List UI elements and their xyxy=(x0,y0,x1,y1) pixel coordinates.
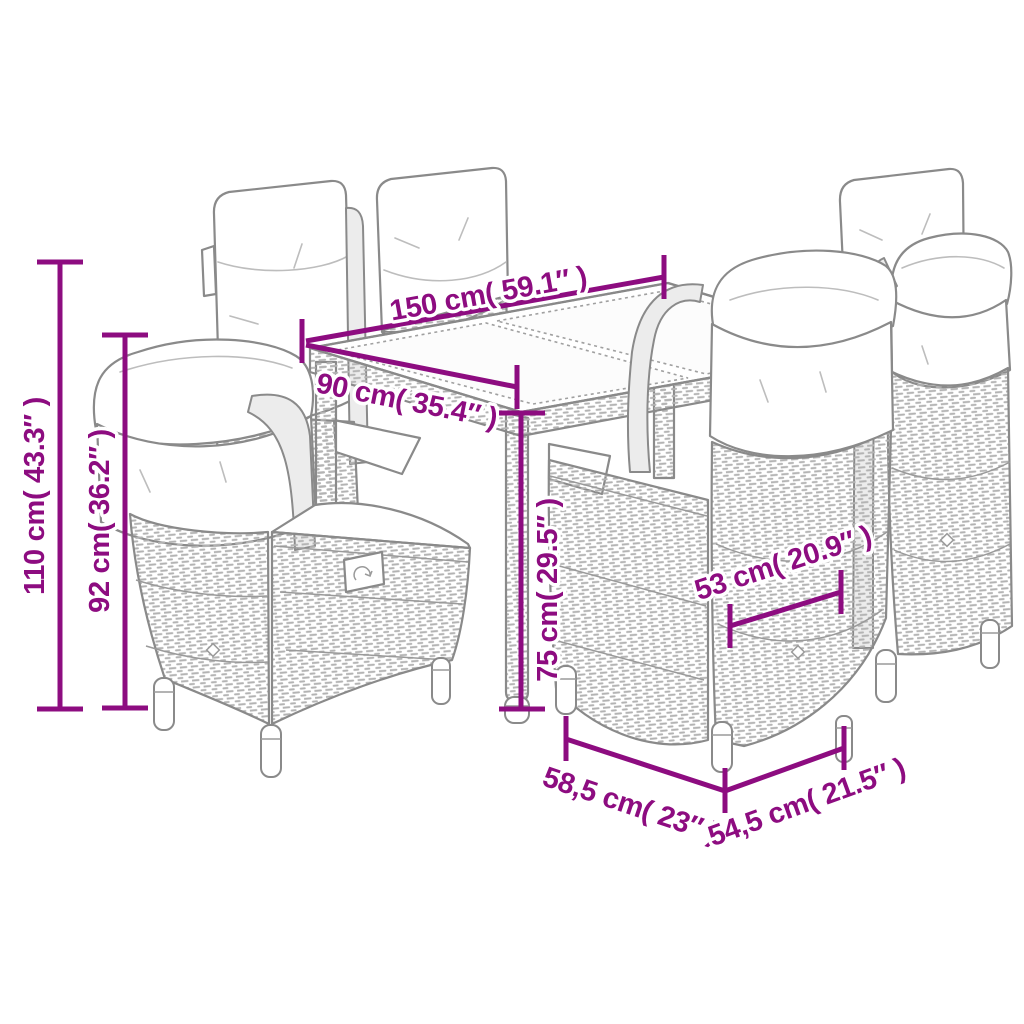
chair-foot xyxy=(876,650,896,702)
chair-body xyxy=(888,368,1012,654)
chair-foot xyxy=(712,722,732,772)
diagram-canvas: 150 cm( 59.1″ ) 90 cm( 35.4″ ) 110 cm( 4… xyxy=(0,0,1024,1024)
dimension-label-75cm: 75 cm( 29.5″ ) xyxy=(532,498,564,682)
frame-tab xyxy=(202,246,216,296)
table-leg-front xyxy=(506,413,528,701)
dimension-label-110cm: 110 cm( 43.3″ ) xyxy=(19,397,51,595)
body-left-face xyxy=(130,514,269,724)
dimension-label-92cm: 92 cm( 36.2″ ) xyxy=(84,429,116,613)
chair-foot xyxy=(154,678,174,730)
furniture-illustration xyxy=(94,168,1012,777)
dimension-total-height: 110 cm( 43.3″ ) xyxy=(19,262,83,709)
dimension-diagram: 150 cm( 59.1″ ) 90 cm( 35.4″ ) 110 cm( 4… xyxy=(0,0,1024,1024)
dimension-label-58-5cm: 58,5 cm( 23″ ) xyxy=(539,761,723,850)
recline-latch-icon xyxy=(344,552,384,592)
chair-foot xyxy=(432,658,450,704)
chair-foot xyxy=(261,725,281,777)
chair-foot xyxy=(981,620,999,668)
dimension-label-54-5cm: 54,5 cm( 21.5″ ) xyxy=(704,752,910,853)
